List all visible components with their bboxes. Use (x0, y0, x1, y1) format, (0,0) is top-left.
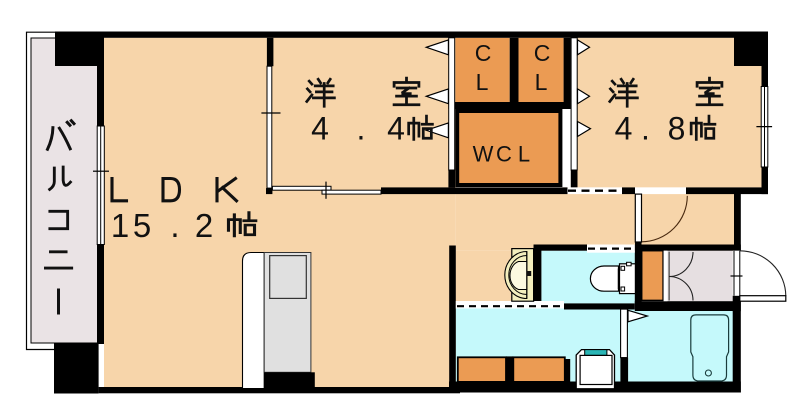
svg-text:1: 1 (111, 207, 129, 244)
svg-text:L: L (476, 69, 489, 95)
svg-text:5: 5 (133, 207, 151, 244)
svg-text:4: 4 (311, 111, 329, 147)
svg-text:8: 8 (668, 111, 686, 147)
svg-text:4: 4 (387, 111, 405, 147)
svg-text:2: 2 (195, 207, 213, 244)
svg-text:L: L (535, 69, 548, 95)
svg-text:.: . (641, 111, 650, 147)
svg-text:C: C (496, 142, 512, 167)
svg-text:C: C (475, 40, 492, 66)
svg-text:L: L (518, 142, 530, 167)
svg-text:C: C (534, 40, 551, 66)
svg-text:.: . (357, 111, 366, 147)
svg-text:4: 4 (615, 111, 633, 147)
svg-text:.: . (170, 207, 179, 244)
svg-text:W: W (473, 142, 494, 167)
